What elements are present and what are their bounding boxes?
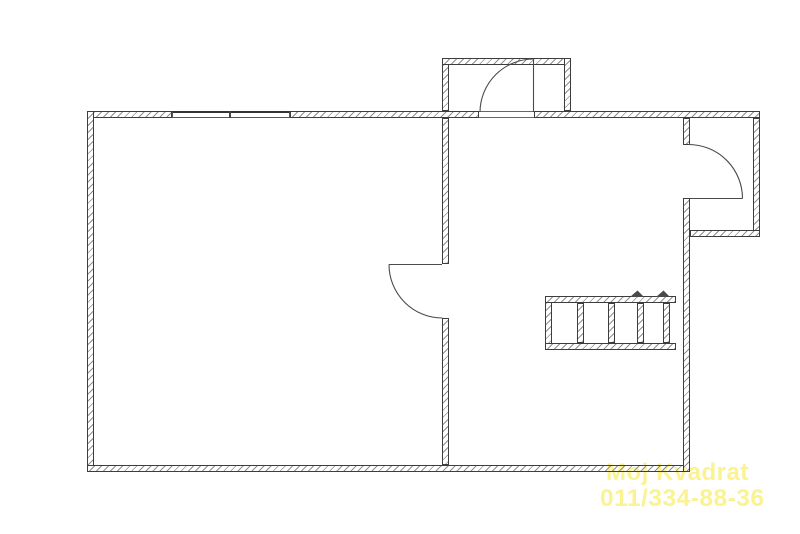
window-mullion [229, 111, 231, 118]
stair-riser-3 [637, 303, 644, 343]
annex-bottom-wall [690, 230, 760, 237]
annex-left-wall-upper [683, 118, 690, 145]
annex-door-arc [689, 145, 743, 199]
vestibule-top-wall [442, 58, 571, 65]
door-swing-overlay [0, 0, 800, 534]
entry-door-threshold [479, 111, 534, 118]
wall-top-middle-segment [290, 111, 479, 118]
wall-right-main [683, 198, 690, 472]
partition-door-arc [389, 265, 443, 319]
entry-door-arc [480, 59, 534, 112]
partition-wall-upper [442, 118, 449, 264]
stair-riser-4 [663, 303, 670, 343]
wall-top-right-segment [534, 111, 760, 118]
annex-right-wall [753, 118, 760, 237]
floor-plan-canvas: Moj Kvadrat 011/334-88-36 [0, 0, 800, 534]
window-top [172, 111, 290, 118]
watermark-phone: 011/334-88-36 [600, 486, 765, 512]
wall-left [87, 111, 94, 472]
vestibule-left-wall [442, 58, 449, 111]
stair-riser-2 [608, 303, 615, 343]
stair-left-wall [545, 296, 552, 350]
stair-riser-1 [577, 303, 584, 343]
wall-top-left-segment [87, 111, 172, 118]
watermark: Moj Kvadrat 011/334-88-36 [600, 460, 765, 512]
watermark-brand: Moj Kvadrat [600, 460, 765, 486]
vestibule-right-wall [564, 58, 571, 111]
stair-top-rail [545, 296, 676, 303]
stair-bottom-rail [545, 343, 676, 350]
partition-wall-lower [442, 318, 449, 465]
